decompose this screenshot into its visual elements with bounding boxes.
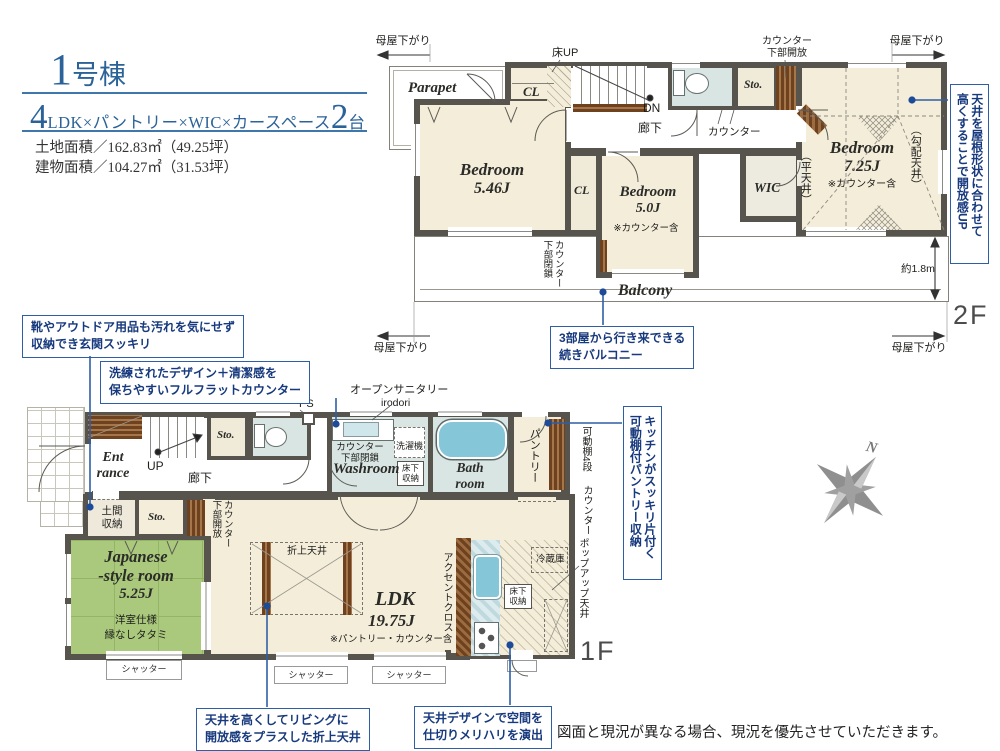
f1-irodori-label: irodori	[381, 397, 410, 410]
f2-toilet-bowl	[685, 73, 709, 94]
f1-ldk-label: LDK	[375, 588, 415, 611]
f1-shoe-closet	[88, 415, 142, 439]
f1-washroom-label: Washroom	[333, 461, 399, 478]
callout-coffered-ceiling: 天井を高くしてリビングに 開放感をプラスした折上天井	[196, 708, 370, 751]
f1-japanese-label: Japanese -style room 5.25J	[98, 548, 174, 603]
callout-flat-counter: 洗練されたデザイン＋清潔感を 保ちやすいフルフラットカウンター	[100, 361, 310, 404]
f1-pantry-door-gap	[522, 409, 548, 417]
f1-pantry-label: パントリー	[527, 428, 540, 490]
f1-jp-window2	[62, 604, 71, 646]
f2-bedroom1-label: Bedroom 5.46J	[460, 160, 524, 198]
f1-toilet-bowl	[265, 427, 287, 447]
building-area: 建物面積／104.27㎡（31.53坪）	[35, 156, 238, 177]
f1-entrance-label: Entrance	[97, 450, 130, 482]
f1-bath-window	[438, 408, 482, 416]
f1-up-label: UP	[147, 459, 164, 473]
f1-jp-window1	[62, 554, 71, 598]
f1-counter-open-label: カウンター下部開放	[210, 500, 233, 564]
f1-toilet-tank	[254, 424, 265, 448]
f2-cl-top-label: CL	[523, 85, 540, 100]
f2-counter-label: カウンター	[708, 126, 761, 139]
f2-cl-mid-label: CL	[574, 184, 589, 198]
f1-kitchen-sink	[474, 555, 501, 599]
f1-cabinet-box	[544, 599, 568, 652]
f1-wall-a	[135, 500, 139, 536]
f2-bedroom3-note: ※カウンター含	[828, 179, 896, 191]
f1-stairs	[142, 417, 204, 458]
f2-parapet-label: Parapet	[408, 80, 456, 97]
f1-open-counter-wood	[187, 500, 205, 536]
f1-ldk-window1	[276, 652, 348, 660]
f1-vanity-sink	[343, 422, 379, 437]
f1-sto-hall-label: Sto.	[217, 429, 234, 442]
f1-jp-sliding-door	[201, 582, 211, 650]
callout-ceiling-design: 天井デザインで空間を 仕切りメリハリを演出	[414, 706, 552, 749]
f2-moya-top-left: 母屋下がり	[376, 35, 431, 48]
balcony-railing	[420, 289, 941, 290]
f1-bathtub	[437, 420, 507, 459]
f2-stairs	[573, 66, 647, 106]
f1-doma-label: 土間収納	[92, 505, 132, 530]
f2-floor-up-label: 床UP	[552, 47, 578, 60]
f1-ldk-window2	[374, 652, 446, 660]
f1-kitchen-door-gap	[511, 650, 533, 659]
f2-bed2-door-gap	[606, 146, 640, 156]
f2-balcony-label: Balcony	[618, 282, 672, 300]
callout-sloped-ceiling: 天井を屋根形状に合わせて高くすることで開放感UP	[950, 84, 989, 264]
f1-shelf-label: 可動棚4段	[579, 426, 591, 480]
f1-jp-spec1: 洋室仕様	[115, 614, 157, 627]
f2-window-west	[411, 124, 420, 176]
f2-wic-label: WIC	[754, 180, 780, 196]
f1-sto-ldk-label: Sto.	[148, 511, 165, 524]
f1-toilet-window	[256, 408, 290, 416]
f2-balcony-door2	[612, 269, 684, 278]
f1-stove	[474, 622, 499, 654]
f2-stairs-landing	[573, 104, 647, 112]
f1-fridge-label: 冷蔵庫	[536, 554, 565, 565]
building-number-suffix: 号棟	[72, 53, 126, 92]
f2-bedroom2-note: ※カウンター含	[614, 223, 679, 234]
f1-floor-storage2-label: 床下収納	[506, 586, 530, 606]
f2-window-east	[938, 150, 947, 194]
f1-accent-wall	[456, 538, 471, 656]
f2-toilet-tank	[673, 70, 685, 96]
f1-counter-right-label: カウンター	[580, 485, 592, 531]
f1-washer-label: 洗濯機	[396, 441, 423, 452]
f2-floor-up-hatch	[547, 66, 571, 107]
disclaimer: 図面と現況が異なる場合、現況を優先させていただきます。	[557, 721, 947, 742]
f2-dn-label: DN	[643, 101, 660, 115]
f1-accent-label: アクセントクロス	[440, 552, 452, 632]
f2-slope-ceiling-label: （勾配天井）	[908, 124, 921, 194]
f2-flat-ceiling-label: （平天井）	[798, 150, 811, 208]
f1-doma-threshold	[93, 490, 119, 500]
f2-counter-closed-label: カウンター下部閉鎖	[541, 240, 564, 302]
header-rule-top	[22, 92, 367, 94]
f1-shutter3: シャッター	[372, 666, 446, 684]
callout-entrance-storage: 靴やアウトドア用品も汚れを気にせず 収納でき玄関スッキリ	[22, 315, 244, 358]
land-area: 土地面積／162.83㎡（49.25坪）	[35, 136, 238, 157]
callout-pantry: キッチンがスッキリ片付く可動棚付パントリー収納	[623, 406, 662, 580]
f1-entrance-porch	[27, 407, 85, 502]
f1-entrance-door-gap	[85, 444, 92, 492]
f2-bedroom3-label: Bedroom 7.25J	[830, 138, 894, 176]
compass-icon	[791, 431, 909, 549]
f1-bath-label: Bathroom	[455, 460, 484, 491]
f2-bedroom2-label: Bedroom 5.0J	[620, 184, 677, 217]
compass-n-label: N	[864, 439, 879, 458]
f2-moya-top-right: 母屋下がり	[890, 35, 945, 48]
f1-kitchen-step	[507, 660, 537, 672]
f2-moya-bottom-left: 母屋下がり	[374, 342, 429, 355]
header-rule-bottom	[22, 130, 367, 132]
f2-balcony-door3	[806, 227, 886, 236]
f1-popup-label: ポップアップ天井	[576, 538, 588, 630]
f2-window-north	[848, 59, 906, 68]
f1-post-right	[343, 542, 352, 615]
f2-hall-label: 廊下	[638, 121, 662, 135]
f1-pantry-shelf	[549, 419, 565, 490]
f1-coffered-label: 折上天井	[285, 546, 329, 558]
floorplan-page: { "header": { "num": "1", "num_suffix": …	[0, 0, 1000, 750]
f1-ldk-size: 19.75J	[368, 611, 415, 631]
f1-shutter1: シャッター	[106, 660, 182, 680]
f1-hall-label: 廊下	[188, 471, 212, 485]
f2-sto-label: Sto.	[744, 79, 762, 92]
f2-toilet-window	[672, 59, 700, 68]
page-title: 1 号棟	[50, 44, 126, 95]
building-number: 1	[50, 44, 72, 95]
f1-post-left	[262, 542, 271, 615]
f2-counter-wood	[776, 66, 796, 110]
f1-ps-shaft	[302, 412, 315, 425]
f2-balcony-door1	[448, 227, 532, 236]
f2-bed2-counter	[600, 240, 607, 272]
f1-open-sanitary-label: オープンサニタリー	[350, 384, 448, 397]
f1-shutter2: シャッター	[274, 666, 348, 684]
f1-ldk-note: ※パントリー・カウンター含	[330, 634, 452, 645]
f1-jp-window-south	[106, 651, 182, 659]
f2-counter-open-label: カウンター下部開放	[748, 36, 826, 60]
callout-balcony: 3部屋から行き来できる 続きバルコニー	[550, 326, 694, 369]
f1-porch-step	[40, 501, 85, 527]
f1-floor-storage1-label: 床下収納	[399, 463, 422, 483]
f2-bed1-door-gap	[566, 108, 575, 142]
f2-dim-label: 約1.8m	[901, 263, 935, 276]
f2-moya-bottom-right: 母屋下がり	[892, 342, 947, 355]
f1-floor-label: 1F	[580, 636, 616, 667]
f2-floor-label: 2F	[953, 300, 989, 331]
f1-jp-spec2: 縁なしタタミ	[105, 629, 168, 642]
